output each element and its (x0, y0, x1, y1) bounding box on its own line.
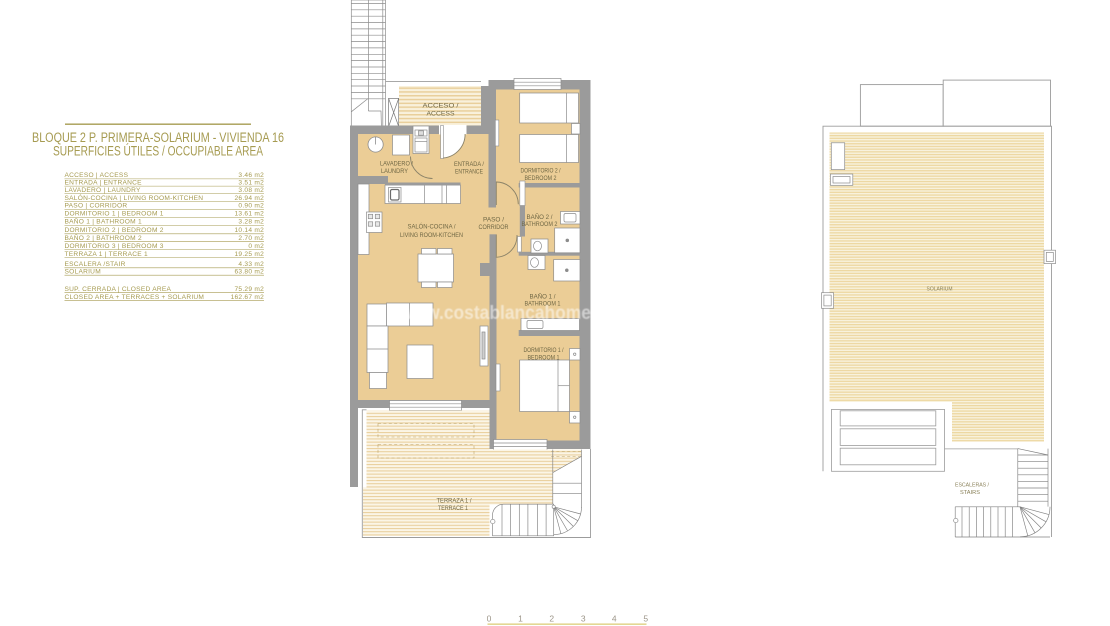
svg-text:5: 5 (643, 614, 648, 624)
svg-text:CLOSED AREA + TERRACES + SOLAR: CLOSED AREA + TERRACES + SOLARIUM (65, 294, 205, 301)
svg-text:www.costablancahome: www.costablancahome (398, 303, 591, 324)
svg-text:ACCESS: ACCESS (427, 111, 455, 117)
svg-text:LIVING ROOM-KITCHEN: LIVING ROOM-KITCHEN (400, 233, 463, 239)
svg-text:BAÑO 2 /: BAÑO 2 / (527, 214, 553, 221)
svg-text:SALÓN-COCINA | LIVING ROOM-KIT: SALÓN-COCINA | LIVING ROOM-KITCHEN (65, 193, 204, 202)
svg-text:TERRAZA 1 | TERRACE 1: TERRAZA 1 | TERRACE 1 (65, 251, 149, 258)
svg-text:4: 4 (612, 614, 617, 624)
svg-text:DORMITORIO 1 /: DORMITORIO 1 / (524, 348, 564, 354)
svg-text:TERRAZA 1 /: TERRAZA 1 / (437, 499, 472, 505)
svg-text:LAUNDRY: LAUNDRY (381, 169, 408, 175)
svg-text:DORMITORIO 1 | BEDROOM 1: DORMITORIO 1 | BEDROOM 1 (65, 211, 164, 218)
svg-text:10.14 m2: 10.14 m2 (235, 227, 265, 234)
svg-text:SOLARIUM: SOLARIUM (927, 287, 953, 293)
svg-text:ENTRADA | ENTRANCE: ENTRADA | ENTRANCE (65, 179, 143, 186)
svg-text:2.70 m2: 2.70 m2 (238, 235, 264, 242)
svg-text:BAÑO 1 /: BAÑO 1 / (530, 294, 556, 301)
svg-text:4.33 m2: 4.33 m2 (238, 261, 264, 268)
svg-text:0 m2: 0 m2 (248, 243, 264, 250)
svg-text:ESCALERA /STAIR: ESCALERA /STAIR (65, 261, 126, 268)
svg-text:LAVADERO | LAUNDRY: LAVADERO | LAUNDRY (65, 187, 142, 194)
svg-text:3.28 m2: 3.28 m2 (238, 219, 264, 226)
svg-text:3: 3 (581, 614, 586, 624)
svg-text:63.80 m2: 63.80 m2 (235, 268, 265, 275)
svg-text:PASO /: PASO / (483, 217, 504, 223)
svg-text:0: 0 (487, 614, 492, 624)
svg-text:ESCALERAS /: ESCALERAS / (955, 483, 989, 489)
svg-text:TERRACE 1: TERRACE 1 (438, 506, 469, 512)
svg-text:BEDROOM 2: BEDROOM 2 (525, 176, 558, 182)
svg-text:BEDROOM 1: BEDROOM 1 (528, 355, 561, 361)
svg-text:BATHROOM 2: BATHROOM 2 (522, 222, 559, 228)
svg-text:3.46 m2: 3.46 m2 (238, 172, 264, 179)
svg-text:SALÓN-COCINA /: SALÓN-COCINA / (408, 224, 456, 231)
svg-text:PASO | CORRIDOR: PASO | CORRIDOR (65, 203, 128, 210)
svg-text:0.90 m2: 0.90 m2 (238, 203, 264, 210)
svg-text:ENTRANCE: ENTRANCE (455, 170, 483, 176)
svg-text:13.61 m2: 13.61 m2 (235, 211, 265, 218)
svg-text:LAVADERO /: LAVADERO / (380, 161, 413, 167)
svg-text:DORMITORIO 2 /: DORMITORIO 2 / (521, 168, 561, 174)
svg-text:26.94 m2: 26.94 m2 (235, 195, 265, 202)
svg-text:DORMITORIO 3 | BEDROOM 3: DORMITORIO 3 | BEDROOM 3 (65, 243, 164, 250)
svg-text:75.29 m2: 75.29 m2 (235, 286, 265, 293)
svg-text:3.51 m2: 3.51 m2 (238, 179, 264, 186)
svg-text:3.08 m2: 3.08 m2 (238, 187, 264, 194)
svg-text:STAIRS: STAIRS (960, 490, 980, 496)
svg-text:BAÑO 1 | BATHROOM 1: BAÑO 1 | BATHROOM 1 (65, 217, 143, 226)
svg-text:SOLARIUM: SOLARIUM (65, 268, 101, 275)
svg-text:ENTRADA /: ENTRADA / (454, 162, 484, 168)
svg-text:SUP. CERRADA | CLOSED AREA: SUP. CERRADA | CLOSED AREA (65, 286, 172, 293)
svg-text:2: 2 (549, 614, 554, 624)
svg-text:ACCESO /: ACCESO / (423, 104, 459, 110)
svg-text:BAÑO 2 | BATHROOM 2: BAÑO 2 | BATHROOM 2 (65, 233, 143, 242)
svg-text:ACCESO | ACCESS: ACCESO | ACCESS (65, 172, 129, 179)
svg-text:1: 1 (518, 614, 523, 624)
svg-text:CORRIDOR: CORRIDOR (479, 225, 510, 231)
svg-text:SUPERFICIES ÚTILES / OCCUPIABL: SUPERFICIES ÚTILES / OCCUPIABLE AREA (53, 142, 263, 159)
svg-text:DORMITORIO 2 | BEDROOM 2: DORMITORIO 2 | BEDROOM 2 (65, 227, 164, 234)
svg-text:19.25 m2: 19.25 m2 (235, 251, 265, 258)
svg-text:162.67 m2: 162.67 m2 (231, 294, 264, 301)
